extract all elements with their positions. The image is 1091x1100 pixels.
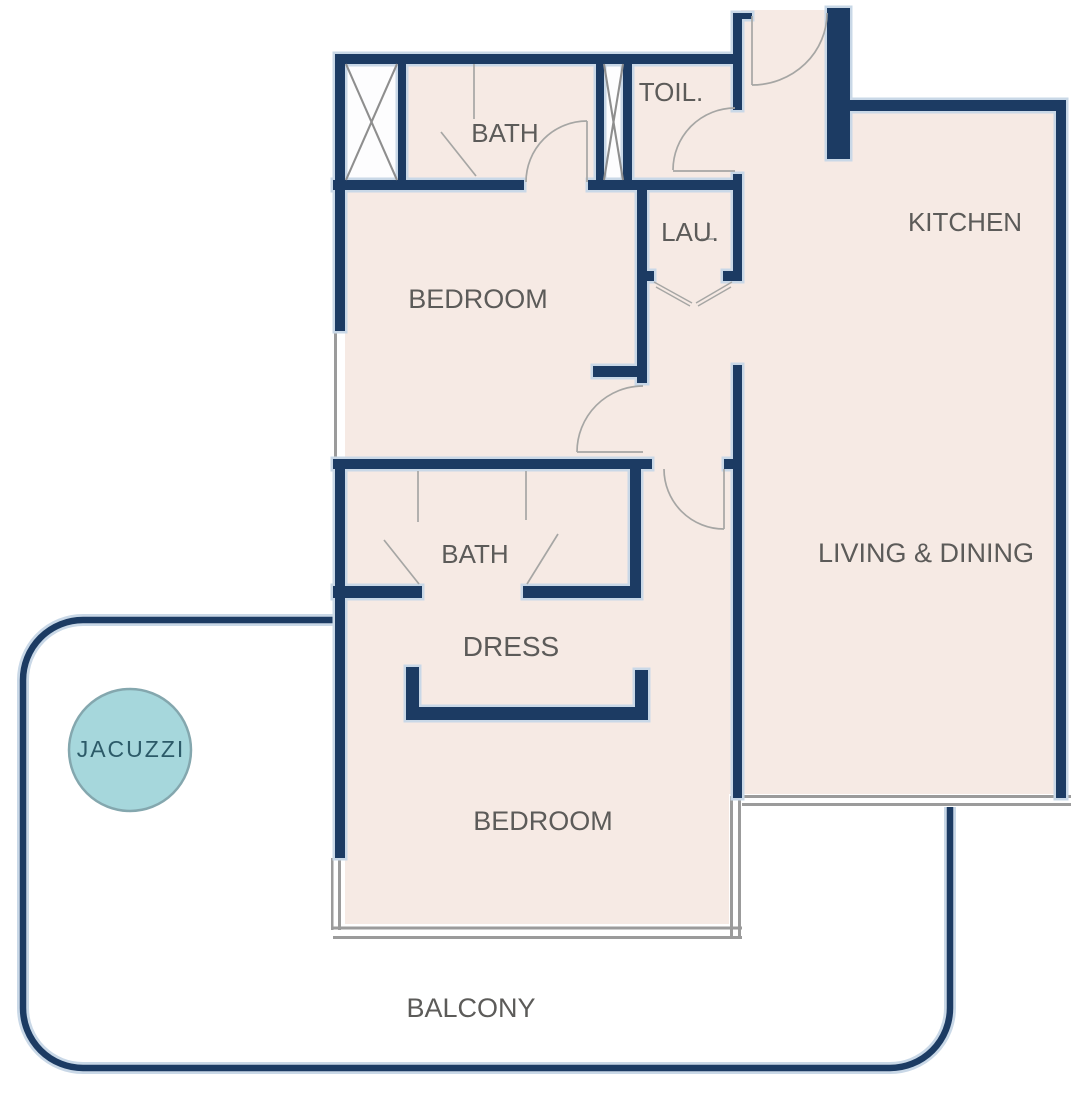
svg-text:BEDROOM: BEDROOM bbox=[408, 284, 548, 314]
svg-text:JACUZZI: JACUZZI bbox=[77, 736, 186, 762]
svg-text:BATH: BATH bbox=[441, 539, 508, 569]
svg-text:BATH: BATH bbox=[471, 118, 538, 148]
svg-text:LIVING & DINING: LIVING & DINING bbox=[818, 538, 1034, 568]
svg-text:TOIL.: TOIL. bbox=[639, 77, 704, 107]
svg-text:BALCONY: BALCONY bbox=[406, 993, 535, 1023]
svg-text:DRESS: DRESS bbox=[463, 631, 559, 662]
svg-text:LAU.: LAU. bbox=[661, 217, 719, 247]
svg-text:BEDROOM: BEDROOM bbox=[473, 806, 613, 836]
svg-text:KITCHEN: KITCHEN bbox=[908, 207, 1022, 237]
